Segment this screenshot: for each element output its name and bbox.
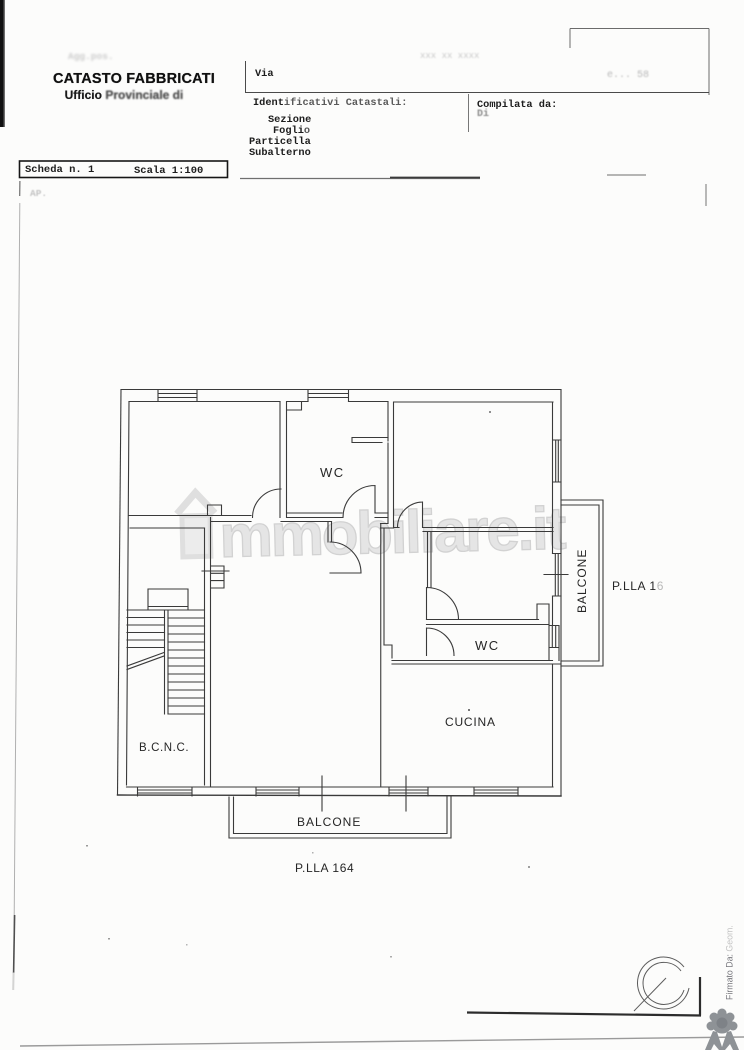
svg-text:BALCONE: BALCONE (297, 815, 361, 829)
svg-text:CUCINA: CUCINA (445, 715, 496, 729)
svg-text:WC: WC (475, 638, 500, 653)
svg-text:WC: WC (320, 465, 345, 480)
svg-text:P.LLA 164: P.LLA 164 (295, 861, 354, 875)
svg-text:BALCONE: BALCONE (575, 549, 589, 613)
svg-text:Firmato Da: Geom.: Firmato Da: Geom. (725, 925, 735, 1000)
svg-text:P.LLA 16: P.LLA 16 (612, 579, 664, 593)
svg-text:B.C.N.C.: B.C.N.C. (139, 742, 189, 754)
